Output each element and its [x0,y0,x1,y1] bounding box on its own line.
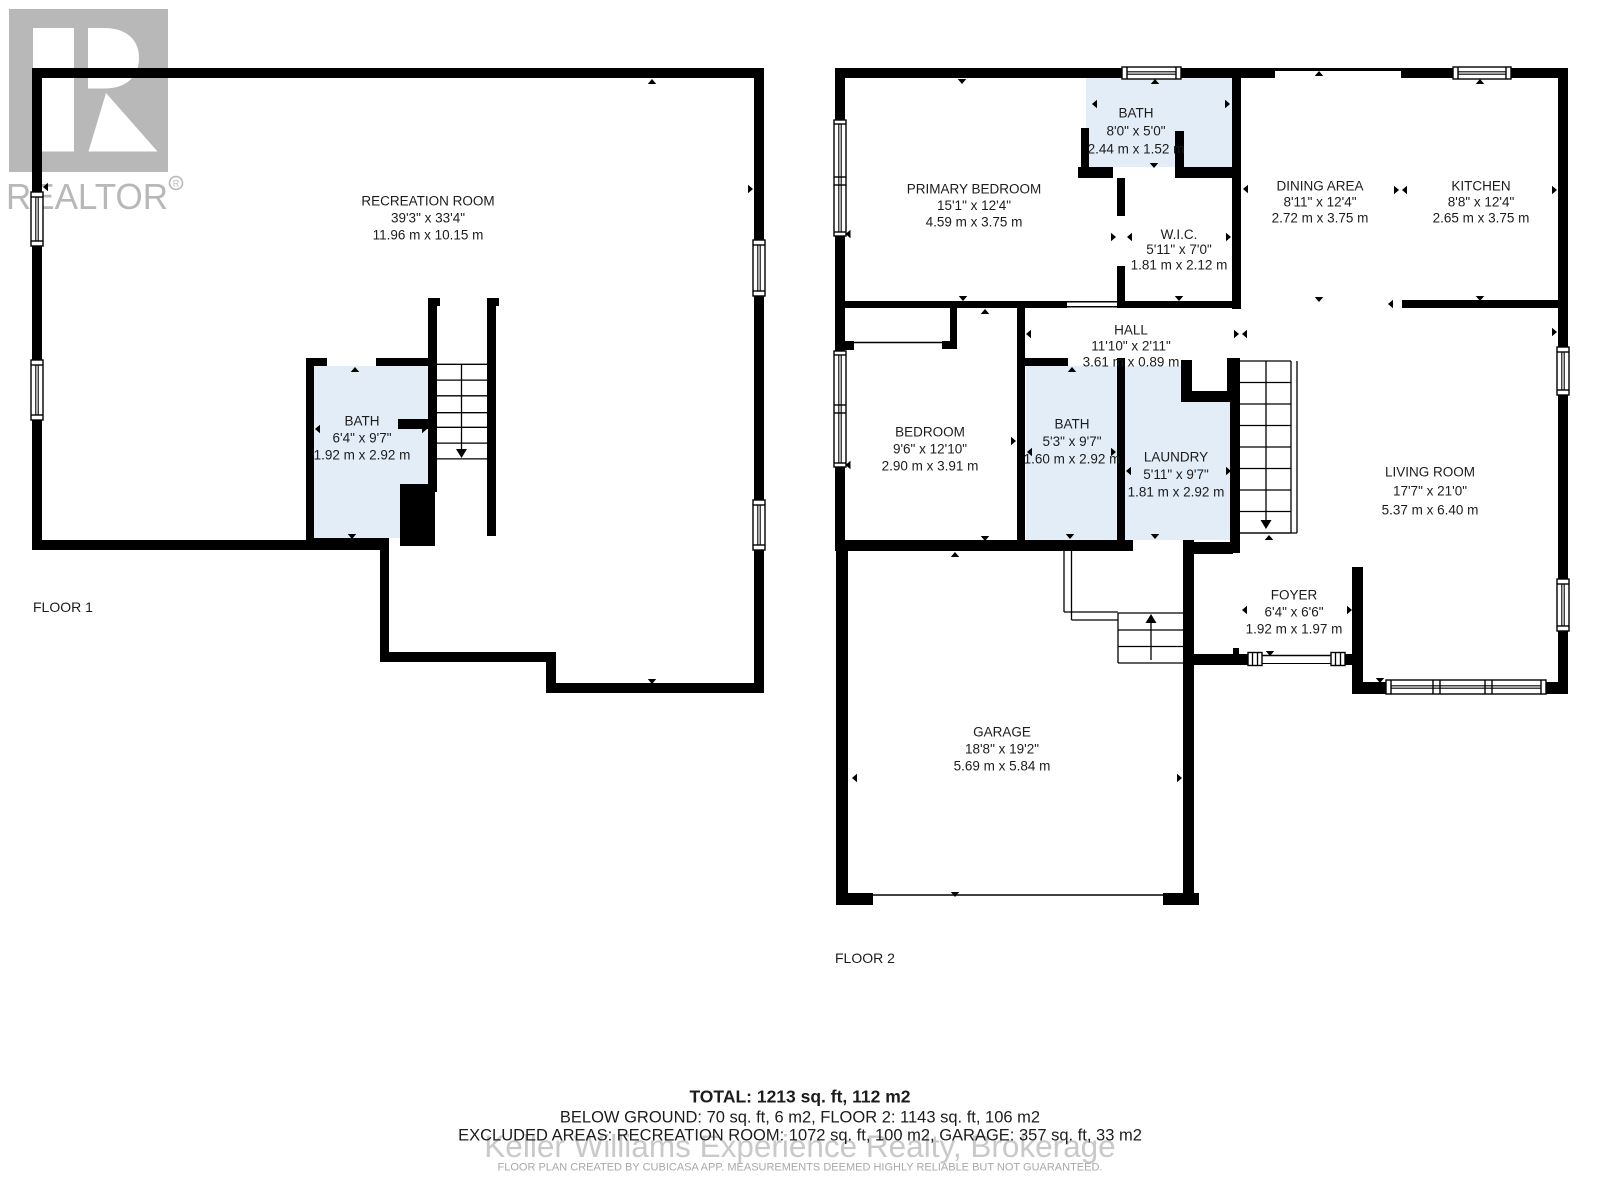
svg-text:FLOOR PLAN CREATED BY CUBICASA: FLOOR PLAN CREATED BY CUBICASA APP. MEAS… [498,1162,1103,1174]
svg-text:EXCLUDED AREAS: RECREATION ROO: EXCLUDED AREAS: RECREATION ROOM: 1072 sq… [458,1127,1142,1145]
svg-text:5'11" x 7'0": 5'11" x 7'0" [1146,242,1212,257]
svg-text:2.90 m x 3.91 m: 2.90 m x 3.91 m [882,459,979,474]
svg-text:6'4" x 9'7": 6'4" x 9'7" [332,431,391,446]
svg-text:PRIMARY BEDROOM: PRIMARY BEDROOM [907,182,1042,197]
svg-text:17'7" x 21'0": 17'7" x 21'0" [1393,484,1467,499]
svg-text:TOTAL: 1213 sq. ft, 112 m2: TOTAL: 1213 sq. ft, 112 m2 [689,1087,910,1107]
svg-text:RECREATION ROOM: RECREATION ROOM [361,194,494,209]
svg-text:1.60 m x 2.92 m: 1.60 m x 2.92 m [1024,452,1121,467]
svg-text:5'11" x 9'7": 5'11" x 9'7" [1143,467,1209,482]
svg-text:8'0" x 5'0": 8'0" x 5'0" [1106,124,1165,139]
svg-text:DINING AREA: DINING AREA [1276,179,1363,194]
svg-text:BATH: BATH [344,414,379,429]
svg-text:FLOOR 2: FLOOR 2 [835,950,895,966]
svg-text:8'11" x 12'4": 8'11" x 12'4" [1283,195,1356,210]
svg-text:1.92 m x 2.92 m: 1.92 m x 2.92 m [314,448,411,463]
svg-text:1.81 m x 2.92 m: 1.81 m x 2.92 m [1128,485,1225,500]
svg-text:HALL: HALL [1114,323,1148,338]
svg-text:6'4" x 6'6": 6'4" x 6'6" [1264,605,1323,620]
svg-text:BATH: BATH [1054,417,1089,432]
svg-text:1.81 m x 2.12 m: 1.81 m x 2.12 m [1131,257,1228,272]
svg-text:8'8" x 12'4": 8'8" x 12'4" [1448,195,1515,210]
svg-text:R: R [173,179,180,189]
svg-text:2.72 m x 3.75 m: 2.72 m x 3.75 m [1272,211,1369,226]
svg-text:9'6" x 12'10": 9'6" x 12'10" [893,442,967,457]
svg-text:BELOW GROUND: 70 sq. ft, 6 m2,: BELOW GROUND: 70 sq. ft, 6 m2, FLOOR 2: … [560,1109,1040,1127]
svg-text:5.69 m x 5.84 m: 5.69 m x 5.84 m [954,759,1051,774]
svg-text:LIVING ROOM: LIVING ROOM [1385,465,1475,480]
svg-text:BEDROOM: BEDROOM [895,425,965,440]
svg-text:FOYER: FOYER [1271,588,1318,603]
svg-text:REALTOR: REALTOR [6,176,168,217]
svg-text:2.44 m x 1.52 m: 2.44 m x 1.52 m [1088,142,1185,157]
svg-text:11'10" x 2'11": 11'10" x 2'11" [1091,339,1171,354]
svg-text:BATH: BATH [1118,106,1153,121]
svg-text:W.I.C.: W.I.C. [1161,227,1198,242]
svg-text:3.61 m x 0.89 m: 3.61 m x 0.89 m [1083,355,1180,370]
svg-text:4.59 m x 3.75 m: 4.59 m x 3.75 m [926,215,1023,230]
svg-text:GARAGE: GARAGE [973,725,1031,740]
svg-text:KITCHEN: KITCHEN [1451,179,1510,194]
svg-text:1.92 m x 1.97 m: 1.92 m x 1.97 m [1246,622,1343,637]
svg-text:FLOOR 1: FLOOR 1 [33,599,93,615]
svg-text:5'3" x 9'7": 5'3" x 9'7" [1042,434,1101,449]
svg-text:5.37 m x 6.40 m: 5.37 m x 6.40 m [1382,503,1479,518]
svg-text:15'1" x 12'4": 15'1" x 12'4" [937,198,1011,213]
svg-text:2.65 m x 3.75 m: 2.65 m x 3.75 m [1433,211,1530,226]
svg-text:11.96 m x 10.15 m: 11.96 m x 10.15 m [373,228,484,243]
svg-text:39'3" x 33'4": 39'3" x 33'4" [391,211,465,226]
svg-text:LAUNDRY: LAUNDRY [1144,450,1208,465]
svg-text:18'8" x 19'2": 18'8" x 19'2" [965,742,1039,757]
